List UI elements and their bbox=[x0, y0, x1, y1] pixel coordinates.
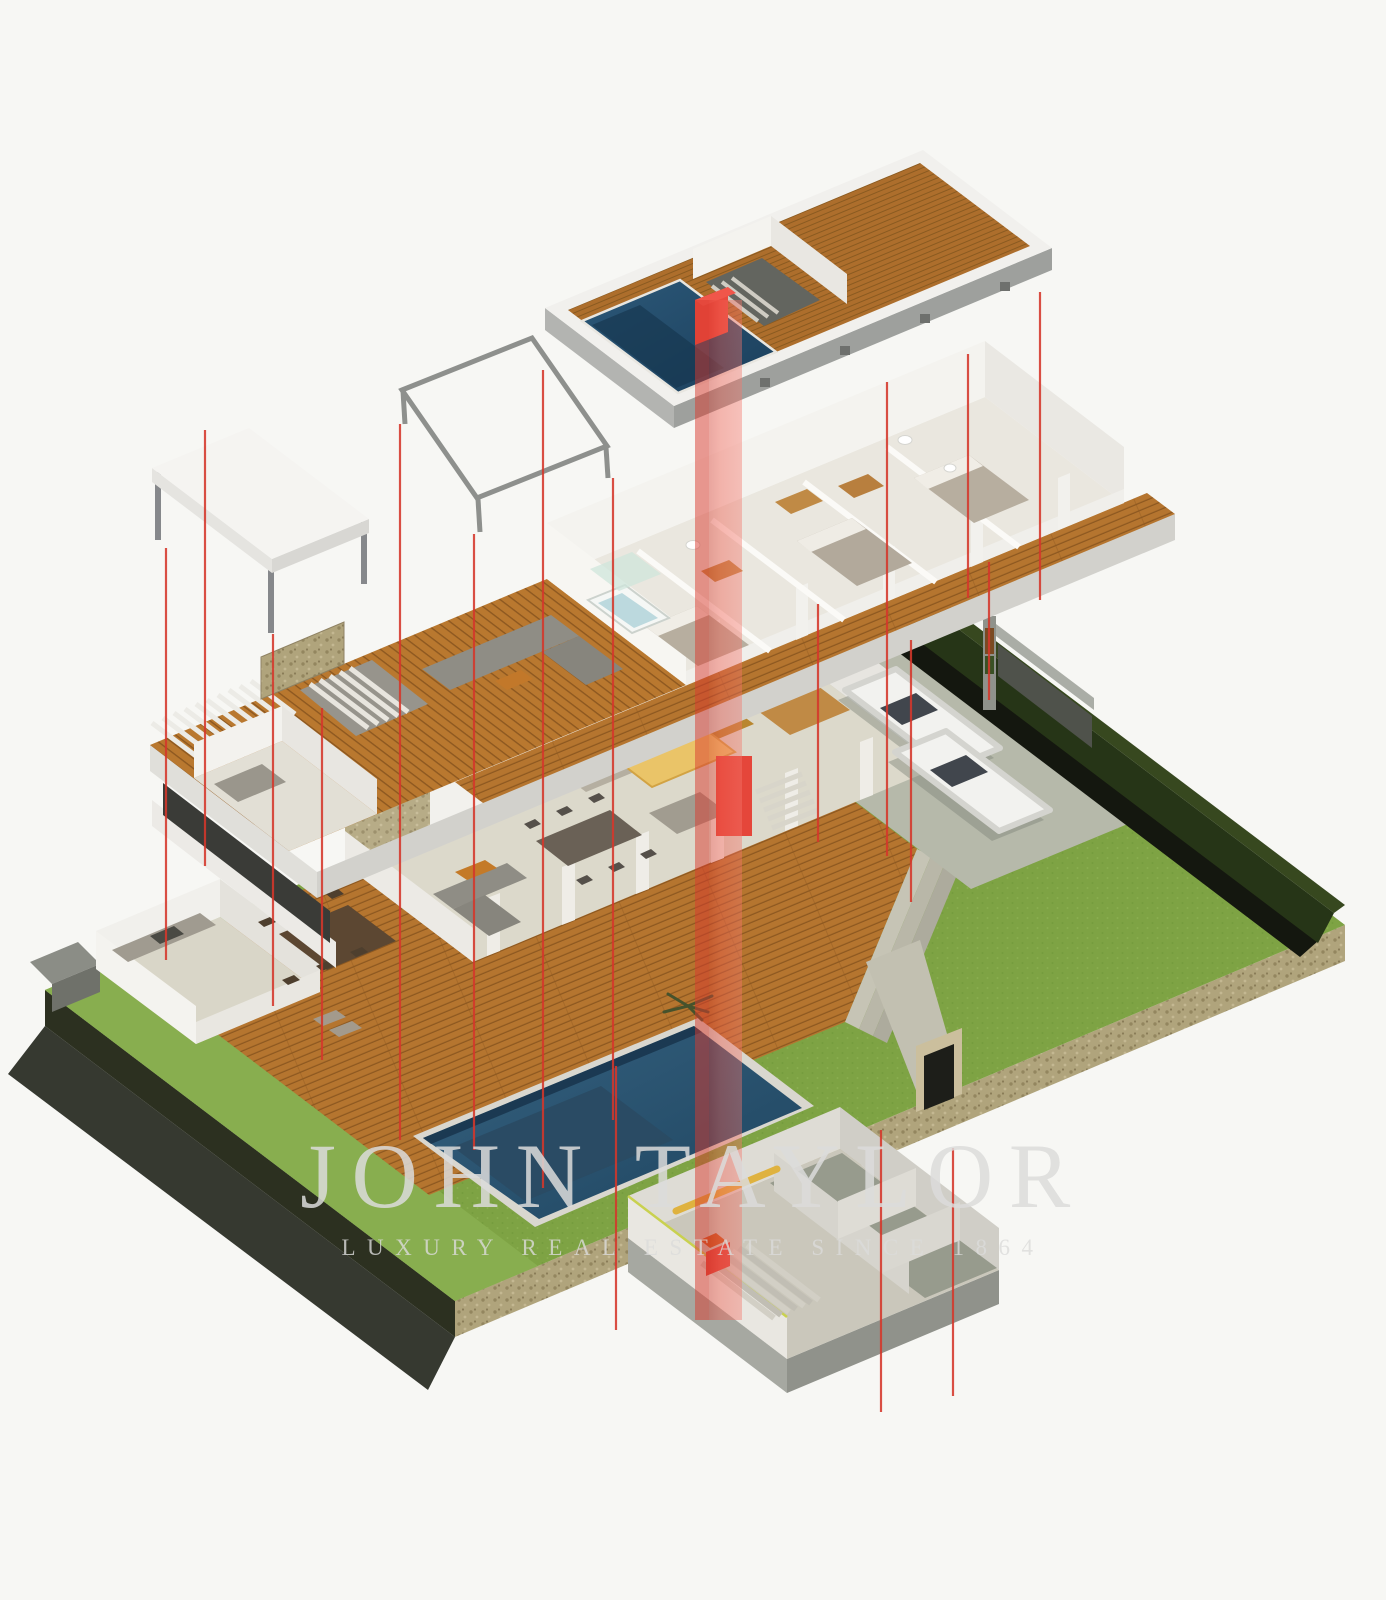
villa-exploded-view-stage: JOHN TAYLOR LUXURY REAL ESTATE SINCE 186… bbox=[0, 0, 1386, 1600]
toilet-2 bbox=[898, 436, 912, 445]
roof-pergola-frame bbox=[402, 338, 608, 532]
exploded-axonometric-rendering bbox=[0, 0, 1386, 1600]
canopy-slab bbox=[152, 428, 369, 633]
sink bbox=[944, 464, 956, 472]
elevator-shaft bbox=[695, 300, 742, 1320]
